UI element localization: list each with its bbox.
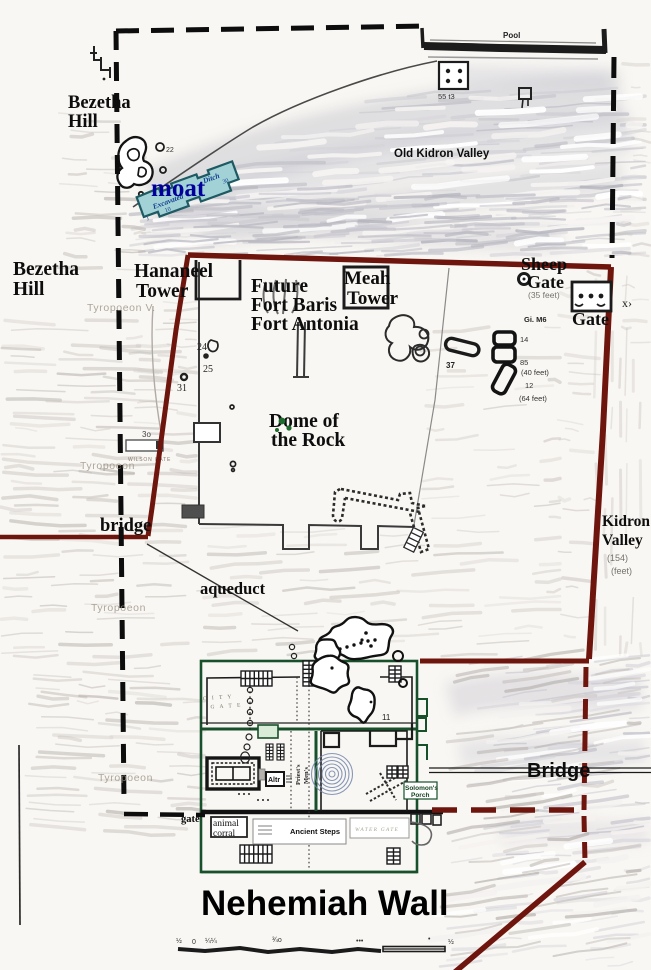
svg-text:Meah: Meah [344, 268, 391, 289]
svg-text:•••: ••• [356, 938, 364, 945]
svg-text:Men's: Men's [303, 767, 310, 784]
svg-text:37: 37 [446, 361, 455, 370]
svg-text:x›: x› [622, 296, 632, 310]
svg-text:¾o: ¾o [272, 937, 282, 944]
svg-text:(154): (154) [607, 553, 628, 563]
svg-text:aqueduct: aqueduct [200, 579, 266, 598]
svg-text:Fort Antonia: Fort Antonia [251, 314, 359, 335]
svg-text:Bridge: Bridge [527, 760, 590, 782]
svg-text:11: 11 [382, 713, 391, 722]
svg-text:(64 feet): (64 feet) [519, 394, 547, 403]
svg-text:animal: animal [213, 819, 239, 829]
svg-text:Tower: Tower [136, 281, 189, 302]
svg-text:G A T E: G A T E [210, 702, 242, 710]
svg-text:0: 0 [192, 939, 196, 946]
svg-text:bridge: bridge [100, 516, 151, 536]
svg-text:Gate: Gate [527, 272, 564, 292]
svg-text:Bezetha: Bezetha [13, 259, 79, 280]
svg-text:Hill: Hill [13, 279, 45, 300]
svg-text:14: 14 [520, 335, 528, 344]
svg-text:gate: gate [181, 814, 200, 825]
svg-text:Tyropoeon: Tyropoeon [98, 772, 153, 784]
svg-text:Ancient Steps: Ancient Steps [290, 827, 340, 836]
svg-text:Valley: Valley [602, 532, 643, 549]
svg-text:Tyropoeon V.: Tyropoeon V. [87, 302, 156, 314]
svg-text:Solomon's: Solomon's [405, 785, 438, 792]
svg-text:12: 12 [525, 381, 533, 390]
svg-text:22: 22 [166, 147, 174, 154]
svg-text:Future: Future [251, 276, 308, 297]
svg-text:corral: corral [213, 829, 236, 839]
svg-text:25: 25 [203, 364, 213, 375]
svg-text:the Rock: the Rock [271, 430, 345, 451]
svg-text:(40 feet): (40 feet) [521, 368, 549, 377]
svg-text:31: 31 [177, 383, 187, 394]
svg-text:(feet): (feet) [611, 566, 632, 576]
svg-text:¼¼: ¼¼ [205, 938, 217, 945]
svg-text:(35 feet): (35 feet) [528, 290, 560, 300]
svg-text:C I T Y: C I T Y [203, 694, 234, 702]
svg-text:Tyropoeon: Tyropoeon [80, 460, 135, 472]
svg-text:Fort Baris: Fort Baris [251, 295, 338, 316]
svg-text:55 t3: 55 t3 [438, 92, 455, 101]
svg-text:½: ½ [448, 938, 454, 946]
svg-text:Porch: Porch [411, 792, 429, 799]
svg-text:Gate: Gate [572, 309, 609, 329]
svg-text:Pool: Pool [503, 31, 520, 40]
svg-text:Old Kidron Valley: Old Kidron Valley [394, 148, 490, 160]
svg-text:Hananeel: Hananeel [134, 261, 214, 282]
svg-text:Hill: Hill [68, 112, 98, 132]
svg-text:WATER GATE: WATER GATE [355, 827, 399, 833]
svg-text:Nehemiah Wall: Nehemiah Wall [201, 884, 449, 923]
svg-text:Kidron: Kidron [602, 513, 650, 530]
svg-text:3o: 3o [142, 430, 151, 439]
svg-text:½: ½ [176, 937, 182, 945]
svg-text:Gi. M6: Gi. M6 [524, 315, 547, 324]
svg-text:Bezetha: Bezetha [68, 93, 131, 113]
svg-text:Tower: Tower [347, 288, 399, 309]
svg-text:24: 24 [197, 342, 207, 353]
svg-text:85: 85 [520, 358, 528, 367]
svg-text:Tyropoeon: Tyropoeon [91, 602, 146, 614]
svg-text:Altr: Altr [268, 777, 280, 784]
svg-text:Sheep: Sheep [521, 254, 567, 274]
svg-text:moat: moat [151, 175, 206, 202]
svg-text:Priest's: Priest's [295, 764, 302, 785]
